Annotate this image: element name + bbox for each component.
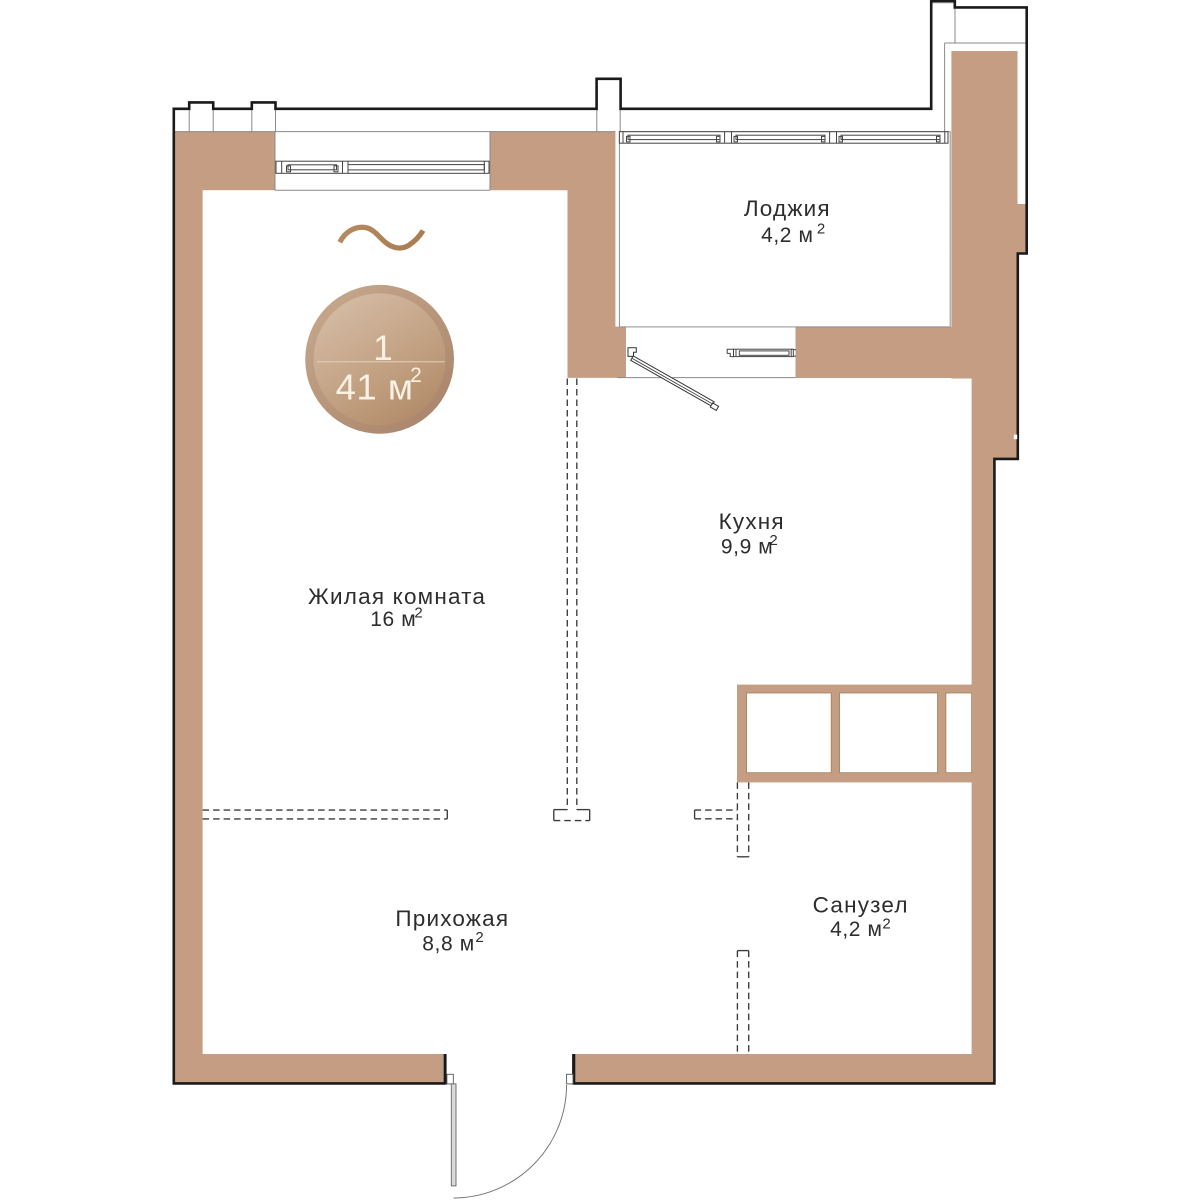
svg-text:16 м: 16 м	[370, 608, 416, 631]
svg-text:Кухня: Кухня	[719, 509, 785, 534]
svg-text:4,2 м: 4,2 м	[830, 918, 882, 941]
svg-text:2: 2	[769, 532, 777, 549]
svg-text:Лоджия: Лоджия	[744, 196, 831, 221]
svg-text:41 м: 41 м	[336, 366, 414, 407]
svg-text:1: 1	[373, 329, 392, 368]
svg-text:2: 2	[410, 364, 422, 387]
svg-text:Жилая комната: Жилая комната	[308, 584, 486, 609]
svg-text:4,2 м: 4,2 м	[761, 224, 813, 247]
svg-text:2: 2	[882, 915, 890, 932]
svg-text:2: 2	[414, 605, 422, 622]
svg-text:Санузел: Санузел	[813, 893, 909, 918]
svg-text:2: 2	[475, 929, 483, 946]
svg-text:9,9 м: 9,9 м	[721, 535, 773, 558]
svg-text:8,8 м: 8,8 м	[422, 933, 474, 956]
svg-text:Прихожая: Прихожая	[395, 906, 509, 931]
svg-text:2: 2	[817, 221, 825, 238]
